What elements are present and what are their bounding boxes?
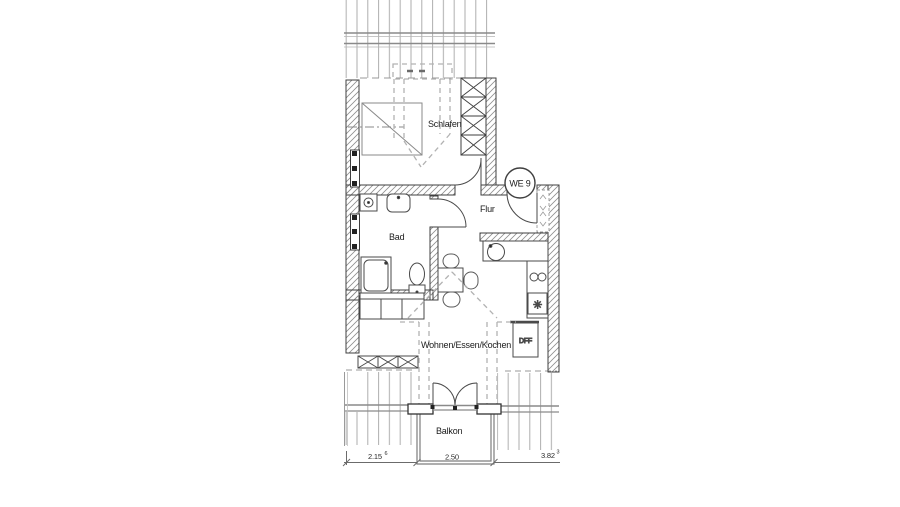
wall-bath-east-stub [430, 196, 438, 199]
washbasin [387, 194, 410, 212]
wall-bedroom-east [486, 78, 496, 185]
wall-hall-south [480, 233, 548, 241]
roof-surface-top [344, 0, 495, 78]
dim-balcony-value: 2.50 [445, 453, 459, 462]
dim-left-sup: 6 [385, 451, 388, 457]
fridge: ✳ [528, 293, 547, 314]
balcony-door-leaf-left [433, 383, 455, 405]
room-label-bedroom: Schlafen [428, 119, 462, 129]
wall-bedroom-south-right [481, 185, 507, 195]
dff-roof-window: DFF [510, 322, 539, 357]
bedroom-door [455, 158, 481, 185]
unit-badge-label: WE 9 [509, 179, 530, 189]
installation-shaft [537, 190, 549, 232]
wall-right-exterior [548, 185, 559, 372]
dim-right-value: 3.82 [541, 451, 555, 460]
roof-surface-bottom-right [497, 371, 559, 450]
sideboard [358, 356, 418, 368]
wall-bath-east [430, 227, 438, 300]
room-label-living: Wohnen/Essen/Kochen [421, 340, 511, 350]
dim-right-sup: 3 [557, 450, 560, 456]
balcony-wall-stub-left [408, 404, 433, 414]
washing-machine [360, 194, 377, 211]
sofa [360, 293, 424, 319]
bath-fixtures [360, 194, 425, 294]
balcony-door-leaf-right [455, 383, 477, 405]
toilet [409, 263, 425, 293]
kitchen-sink [488, 244, 505, 261]
wardrobe [461, 78, 486, 155]
fridge-snowflake-icon: ✳ [533, 300, 542, 312]
dff-label: DFF [519, 338, 532, 345]
floorplan-drawing: ✳ DFF [0, 0, 900, 507]
dim-left-value: 2.15 [368, 452, 382, 461]
bath-door [438, 199, 466, 227]
room-label-bath: Bad [389, 232, 405, 242]
shower [361, 257, 391, 294]
roof-surface-bottom-left [344, 370, 418, 446]
room-label-balcony: Balkon [436, 426, 463, 436]
room-label-hall: Flur [480, 204, 495, 214]
bedroom-furniture [348, 64, 486, 167]
unit-badge: WE 9 [505, 168, 535, 198]
balcony-wall-stub-right [477, 404, 501, 414]
floorplan-canvas: ✳ DFF [0, 0, 900, 507]
